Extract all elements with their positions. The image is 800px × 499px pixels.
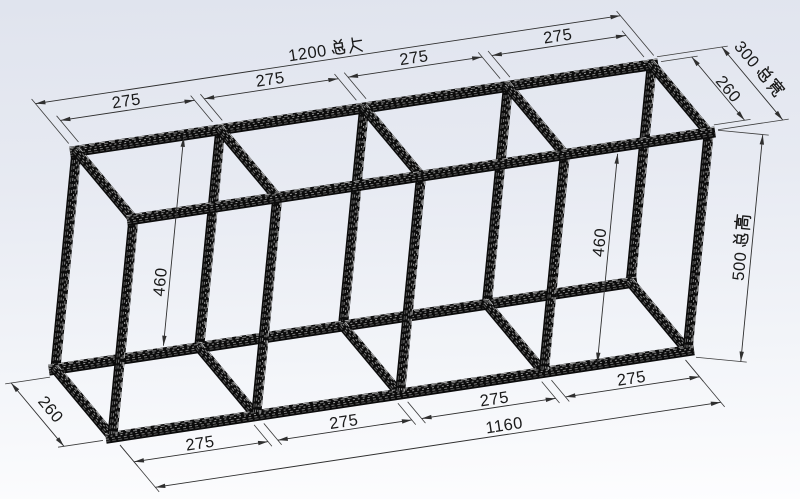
dimension-arrow bbox=[162, 336, 166, 346]
extrusion-stripe bbox=[199, 133, 220, 345]
dimension-extension-line bbox=[686, 360, 725, 407]
extrusion-stripe bbox=[219, 128, 278, 199]
extrusion-stripe bbox=[486, 89, 507, 301]
frame-model bbox=[48, 59, 715, 441]
extrusion-stripe bbox=[505, 87, 564, 158]
dimension-arrow bbox=[155, 484, 165, 488]
frame-member bbox=[628, 67, 656, 280]
dimension-arrow bbox=[760, 135, 764, 145]
frame-member bbox=[685, 136, 713, 349]
extrusion-stripe bbox=[113, 222, 134, 434]
dimension-arrow bbox=[610, 15, 620, 19]
frame-member bbox=[340, 111, 368, 324]
cad-viewport[interactable]: 1200275275275275260300500460460275275275… bbox=[0, 0, 800, 499]
extrusion-stripe bbox=[630, 281, 689, 352]
extrusion-stripe bbox=[361, 109, 420, 180]
dimension-arrow bbox=[492, 52, 502, 56]
extrusion-stripe bbox=[340, 327, 399, 398]
frame-member bbox=[484, 89, 512, 302]
dimension-value: 460 bbox=[150, 267, 171, 298]
extrusion-stripe bbox=[196, 348, 255, 419]
extrusion-stripe bbox=[627, 283, 686, 354]
cjk-glyph-总 bbox=[733, 233, 748, 246]
dimension-extension-line bbox=[622, 31, 644, 57]
dimension-value: 1200 bbox=[287, 42, 328, 66]
dimension-line bbox=[741, 135, 763, 362]
dimension-arrow bbox=[614, 154, 618, 164]
extrusion-stripe bbox=[487, 89, 508, 301]
dimension-label: 1160 bbox=[484, 414, 524, 437]
frame-member bbox=[73, 147, 138, 222]
dimension-arrow bbox=[422, 415, 432, 419]
dimension-arrow bbox=[565, 393, 575, 397]
extrusion-stripe bbox=[688, 136, 709, 348]
dimension-extension-line bbox=[714, 119, 751, 125]
frame-member bbox=[505, 82, 570, 157]
extrusion-stripe bbox=[57, 154, 78, 366]
frame-member bbox=[53, 154, 81, 367]
dimension-extension-line bbox=[32, 99, 69, 143]
extrusion-stripe bbox=[52, 370, 111, 441]
dimension-arrow bbox=[184, 100, 194, 104]
frame-member bbox=[196, 344, 261, 419]
dimension-arrow bbox=[134, 458, 144, 462]
extrusion-stripe bbox=[217, 130, 276, 201]
dimension-arrow bbox=[472, 56, 482, 60]
dimension-label: 1200 bbox=[287, 36, 363, 65]
extrusion-stripe bbox=[114, 222, 135, 434]
extrusion-stripe bbox=[198, 346, 257, 417]
extrusion-stripe bbox=[344, 111, 365, 323]
dimension-label: 460 bbox=[150, 267, 171, 298]
frame-member bbox=[217, 126, 282, 201]
cjk-glyph-长 bbox=[348, 37, 363, 53]
dimension-label: 260 bbox=[34, 393, 66, 427]
extrusion-stripe bbox=[651, 64, 710, 135]
dimension-inner-height-left: 460 bbox=[150, 137, 185, 346]
dimension-label: 460 bbox=[590, 227, 611, 258]
dimension-label: 260 bbox=[712, 72, 744, 106]
extrusion-stripe bbox=[75, 150, 134, 221]
dimension-extension-line bbox=[718, 119, 789, 130]
dimension-arrow bbox=[60, 117, 70, 121]
dimension-label: 275 bbox=[184, 433, 215, 455]
dimension-inner-height-right: 460 bbox=[590, 154, 619, 363]
extrusion-stripe bbox=[363, 107, 422, 178]
dimension-label: 275 bbox=[479, 388, 510, 410]
extrusion-stripe bbox=[507, 85, 566, 156]
extrusion-stripe bbox=[652, 63, 711, 134]
extrusion-stripe bbox=[342, 325, 401, 396]
cad-drawing-canvas[interactable]: 1200275275275275260300500460460275275275… bbox=[0, 0, 800, 499]
frame-member bbox=[648, 61, 713, 136]
frame-member bbox=[397, 179, 425, 392]
dimension-arrow bbox=[740, 351, 744, 361]
extrusion-stripe bbox=[545, 158, 566, 370]
cjk-glyph-总 bbox=[755, 65, 774, 83]
cjk-glyph-高 bbox=[734, 215, 751, 230]
extrusion-stripe bbox=[400, 179, 421, 391]
extrusion-stripe bbox=[544, 157, 565, 369]
extrusion-stripe bbox=[258, 201, 279, 413]
extrusion-stripe bbox=[632, 68, 653, 280]
extrusion-stripe bbox=[631, 68, 652, 280]
frame-member bbox=[361, 104, 426, 179]
dimension-value: 275 bbox=[616, 368, 647, 390]
extrusion-stripe bbox=[220, 128, 279, 199]
dimension-arrow bbox=[328, 78, 338, 82]
dimension-arrow bbox=[689, 376, 699, 380]
cjk-glyph-宽 bbox=[766, 77, 786, 97]
dimension-value: 460 bbox=[590, 227, 611, 258]
dimension-label: 275 bbox=[328, 411, 359, 433]
frame-member bbox=[541, 157, 569, 370]
dimension-extension-line bbox=[191, 96, 213, 122]
dimension-value: 300 bbox=[730, 38, 762, 72]
frame-member bbox=[627, 279, 692, 354]
extrusion-stripe bbox=[488, 89, 509, 301]
frame-member bbox=[110, 222, 138, 435]
dimension-arrow bbox=[616, 35, 626, 39]
dimension-extension-line bbox=[334, 74, 356, 100]
frame-member bbox=[196, 132, 224, 345]
extrusion-stripe bbox=[689, 136, 710, 348]
dimension-value: 1160 bbox=[484, 414, 524, 437]
dimension-value: 260 bbox=[712, 72, 744, 106]
dimension-arrow bbox=[545, 398, 555, 402]
extrusion-stripe bbox=[222, 126, 281, 197]
dimension-value: 275 bbox=[479, 388, 510, 410]
dimension-value: 275 bbox=[328, 411, 359, 433]
extrusion-stripe bbox=[343, 111, 364, 323]
dimension-extension-line bbox=[478, 52, 500, 78]
extrusion-stripe bbox=[223, 126, 282, 197]
frame-member bbox=[253, 200, 281, 413]
extrusion-stripe bbox=[648, 65, 707, 136]
dimension-label: 500 bbox=[729, 215, 754, 282]
dimension-line bbox=[35, 16, 620, 104]
frame-member bbox=[340, 322, 405, 397]
frame-member bbox=[52, 365, 117, 440]
dimension-value: 275 bbox=[184, 433, 215, 455]
extrusion-stripe bbox=[401, 179, 422, 391]
dimension-extension-line bbox=[617, 11, 654, 55]
dimension-extension-line bbox=[5, 377, 50, 384]
dimension-line bbox=[597, 154, 617, 363]
dimension-value: 500 bbox=[730, 251, 751, 282]
dimension-arrow bbox=[258, 441, 268, 445]
extrusion-stripe bbox=[486, 303, 545, 374]
extrusion-stripe bbox=[483, 305, 542, 376]
dimension-label: 275 bbox=[616, 368, 647, 390]
dimension-arrow bbox=[402, 419, 412, 423]
extrusion-stripe bbox=[79, 147, 138, 218]
dimension-extension-line bbox=[718, 130, 769, 135]
frame-member bbox=[483, 300, 548, 375]
dimension-extension-line bbox=[696, 357, 747, 362]
dimension-arrow bbox=[278, 436, 288, 440]
dimension-extension-line bbox=[657, 46, 728, 57]
extrusion-stripe bbox=[256, 201, 277, 413]
dimension-arrow bbox=[711, 402, 721, 406]
extrusion-stripe bbox=[54, 368, 113, 439]
dimension-extension-line bbox=[120, 445, 159, 492]
dimension-line bbox=[163, 137, 183, 346]
extrusion-stripe bbox=[56, 154, 77, 366]
cjk-glyph-总 bbox=[331, 39, 345, 55]
dimension-extension-line bbox=[58, 440, 103, 447]
dimension-value: 260 bbox=[34, 393, 66, 427]
dimension-arrow bbox=[35, 100, 45, 104]
dimension-arrow bbox=[204, 95, 214, 99]
dimension-arrow bbox=[348, 74, 358, 78]
extrusion-stripe bbox=[73, 152, 132, 223]
extrusion-stripe bbox=[201, 133, 222, 345]
